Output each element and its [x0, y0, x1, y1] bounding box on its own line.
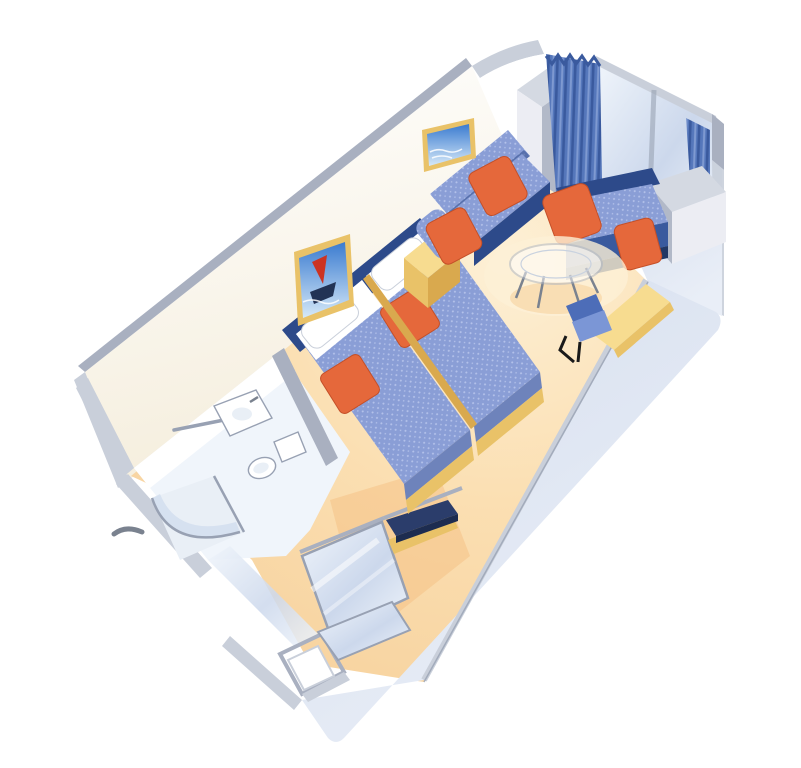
- stateroom-isometric-cutaway: [0, 0, 801, 768]
- sink-basin: [232, 408, 252, 421]
- stateroom-cutaway-illustration: [0, 0, 801, 768]
- round-glass-table: [484, 236, 628, 316]
